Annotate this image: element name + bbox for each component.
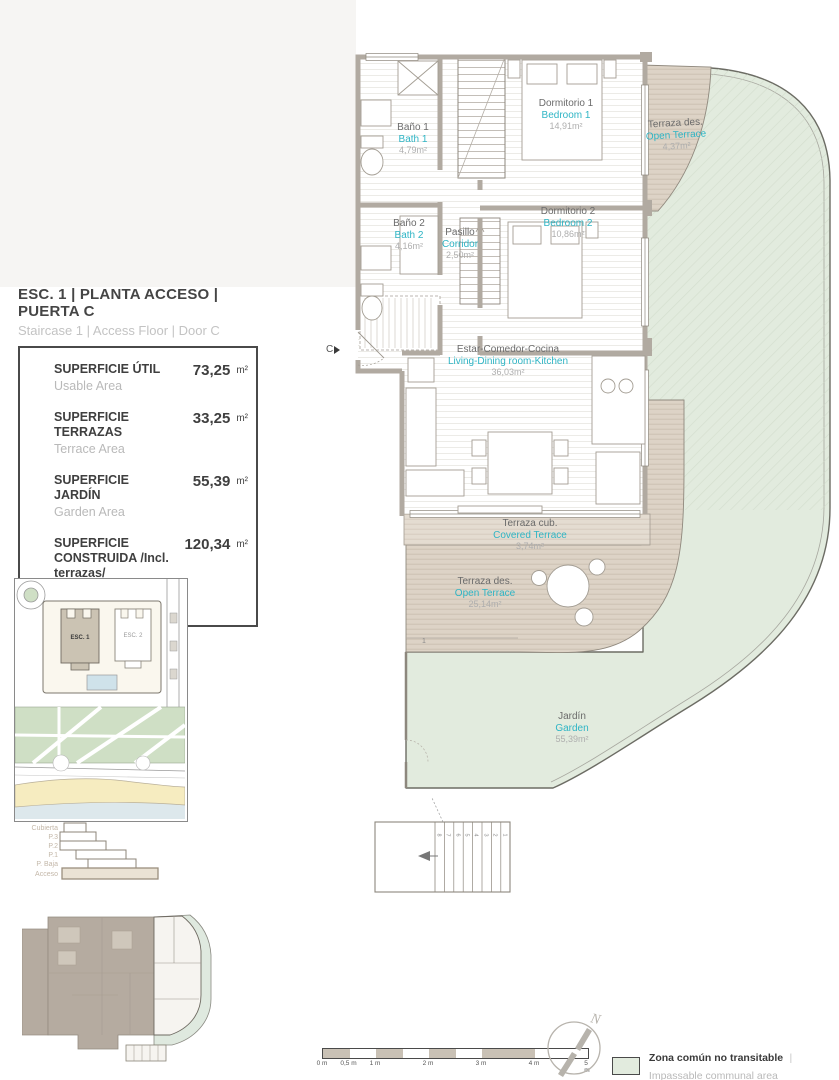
- stair-step-number: 3: [483, 833, 489, 836]
- room-area: 10,86m²: [541, 229, 595, 241]
- section-graphic: Cubierta P.3 P.2 P.1 P. Baja Acceso: [16, 820, 186, 884]
- section-level-label: P.1: [48, 852, 58, 859]
- area-value: 120,34 m²: [174, 536, 248, 553]
- entrance-arrow-icon: [334, 346, 340, 354]
- esc1-label: ESC. 1: [70, 635, 90, 641]
- room-label-bedroom2: Dormitorio 2 Bedroom 2 10,86m²: [541, 206, 595, 241]
- room-name-en: Open Terrace: [455, 588, 515, 600]
- room-name-es: Estar-Comedor-Cocina: [448, 344, 568, 356]
- room-name-es: Terraza des.: [455, 576, 515, 588]
- esc2-label: ESC. 2: [123, 633, 143, 639]
- scale-label: 1 m: [370, 1060, 381, 1067]
- section-level-label: Cubierta: [32, 825, 59, 832]
- beach: [15, 779, 185, 807]
- compass-needle-upper: [575, 1028, 592, 1051]
- room-name-en: Bedroom 2: [541, 218, 595, 230]
- room-name-es: Baño 1: [397, 122, 429, 134]
- info-panel: ESC. 1 | PLANTA ACCESO | PUERTA C Stairc…: [18, 286, 262, 627]
- scale-label: 0,5 m: [340, 1060, 356, 1067]
- compass-graphic: N: [532, 1002, 624, 1078]
- area-number: 73,25: [193, 362, 231, 379]
- sea: [15, 803, 185, 819]
- room-name-en: Bath 1: [397, 134, 429, 146]
- legend-swatch: [612, 1057, 640, 1075]
- area-label-es: SUPERFICIE JARDÍN: [54, 473, 174, 503]
- stair-step-number: 5: [464, 833, 470, 836]
- room-area: 36,03m²: [448, 367, 568, 379]
- key-plan-current-unit: [154, 916, 201, 1035]
- scale-segment: [323, 1049, 350, 1058]
- room-label-open-terrace-small: Terraza des. Open Terrace 4,37m²: [645, 116, 707, 154]
- room-name-es: Pasillo: [442, 227, 478, 239]
- room-name-en: Bath 2: [393, 230, 425, 242]
- scale-segment: [429, 1049, 456, 1058]
- area-labels: SUPERFICIE TERRAZAS Terrace Area: [54, 410, 174, 456]
- legend: Zona común no transitable | Impassable c…: [612, 1048, 839, 1080]
- area-number: 120,34: [184, 536, 230, 553]
- key-plan-graphic: [22, 903, 222, 1063]
- room-label-bedroom1: Dormitorio 1 Bedroom 1 14,91m²: [539, 98, 593, 133]
- area-value: 55,39 m²: [174, 473, 248, 490]
- tv-unit: [458, 506, 542, 513]
- room-name-es: Dormitorio 2: [541, 206, 595, 218]
- stair-step-number: 4: [473, 833, 479, 836]
- stair-step-number: 7: [445, 833, 451, 836]
- page-subtitle: Staircase 1 | Access Floor | Door C: [18, 323, 262, 338]
- entrance-letter: C: [326, 344, 333, 355]
- right-road: [167, 579, 179, 707]
- room-label-corridor: Pasillo Corridor 2,50m²: [442, 227, 478, 262]
- scale-segment: [482, 1049, 535, 1058]
- room-label-bath2: Baño 2 Bath 2 4,16m²: [393, 218, 425, 253]
- area-row-garden: SUPERFICIE JARDÍN Garden Area 55,39 m²: [20, 473, 248, 519]
- section-level-p3: [60, 832, 96, 841]
- room-name-en: Living-Dining room-Kitchen: [448, 356, 568, 368]
- top-left-backdrop: [0, 0, 356, 287]
- area-unit: m²: [236, 362, 248, 376]
- entrance-marker: C: [326, 344, 340, 355]
- building-section-diagram: Cubierta P.3 P.2 P.1 P. Baja Acceso: [16, 820, 186, 884]
- section-level-cubierta: [64, 823, 86, 832]
- area-number: 33,25: [193, 410, 231, 427]
- section-level-p1: [76, 850, 126, 859]
- section-level-label: P.3: [48, 834, 58, 841]
- compass-north-arrow: N: [532, 1002, 624, 1078]
- floorplan-graphic: [340, 40, 839, 900]
- page-title: ESC. 1 | PLANTA ACCESO | PUERTA C: [18, 286, 262, 320]
- area-label-en: Garden Area: [54, 505, 174, 519]
- room-name-es: Terraza cub.: [493, 518, 567, 530]
- park: [15, 707, 185, 771]
- room-name-en: Covered Terrace: [493, 530, 567, 542]
- floorplan-sheet: ESC. 1 | PLANTA ACCESO | PUERTA C Stairc…: [0, 0, 839, 1080]
- room-label-covered-terrace: Terraza cub. Covered Terrace 3,74m²: [493, 518, 567, 553]
- building-esc2: ESC. 2: [115, 609, 151, 668]
- stair-step-number: 1: [502, 833, 508, 836]
- room-name-es: Jardín: [555, 711, 588, 723]
- section-level-acceso-highlight: [62, 868, 158, 879]
- room-name-en: Corridor: [442, 239, 478, 251]
- key-plan-thumbnail: [22, 903, 222, 1063]
- room-area: 2,50m²: [442, 250, 478, 262]
- area-row-usable: SUPERFICIE ÚTIL Usable Area 73,25 m²: [20, 362, 248, 393]
- area-value: 73,25 m²: [174, 362, 248, 379]
- room-label-living: Estar-Comedor-Cocina Living-Dining room-…: [448, 344, 568, 379]
- roundabout: [17, 581, 45, 609]
- area-label-es: SUPERFICIE ÚTIL: [54, 362, 174, 377]
- room-area: 55,39m²: [555, 734, 588, 746]
- area-unit: m²: [236, 410, 248, 424]
- area-value: 33,25 m²: [174, 410, 248, 427]
- legend-text: Zona común no transitable | Impassable c…: [649, 1048, 839, 1080]
- stair-step-number: 2: [492, 833, 498, 836]
- area-label-en: Usable Area: [54, 379, 174, 393]
- scale-segment: [456, 1049, 483, 1058]
- scale-segment: [350, 1049, 377, 1058]
- scale-segment: [376, 1049, 403, 1058]
- site-location-map: ESC. 1 ESC. 2: [14, 578, 188, 822]
- room-name-en: Bedroom 1: [539, 110, 593, 122]
- section-level-label: P. Baja: [36, 861, 58, 868]
- scale-label: 0 m: [317, 1060, 328, 1067]
- section-level-label: P.2: [48, 843, 58, 850]
- building-esc1: ESC. 1: [61, 609, 99, 670]
- room-area: 4,79m²: [397, 145, 429, 157]
- room-area: 25,14m²: [455, 599, 515, 611]
- external-staircase: [375, 798, 510, 892]
- site-map-graphic: ESC. 1 ESC. 2: [15, 579, 185, 819]
- internal-stair-upper: [458, 57, 505, 178]
- section-level-pbaja: [88, 859, 136, 868]
- section-level-label: Acceso: [35, 871, 58, 878]
- area-unit: m²: [236, 536, 248, 550]
- room-label-bath1: Baño 1 Bath 1 4,79m²: [397, 122, 429, 157]
- main-floorplan: C Baño 1 Bath 1 4,79m² Dormitorio 1 Bedr…: [340, 40, 839, 900]
- area-unit: m²: [236, 473, 248, 487]
- pool: [87, 675, 117, 690]
- area-row-terrace: SUPERFICIE TERRAZAS Terrace Area 33,25 m…: [20, 410, 248, 456]
- kitchen: [592, 356, 645, 504]
- scale-label: 2 m: [423, 1060, 434, 1067]
- compass-north-label: N: [588, 1011, 602, 1028]
- room-name-en: Garden: [555, 723, 588, 735]
- scale-segment: [403, 1049, 430, 1058]
- room-area: 4,16m²: [393, 241, 425, 253]
- scale-label: 3 m: [476, 1060, 487, 1067]
- area-label-en: Terrace Area: [54, 442, 174, 456]
- legend-separator: |: [790, 1052, 793, 1064]
- area-label-es: SUPERFICIE TERRAZAS: [54, 410, 174, 440]
- area-label-es: SUPERFICIE CONSTRUIDA /Incl. terrazas/: [54, 536, 174, 581]
- legend-label-en: Impassable communal area: [649, 1070, 778, 1080]
- area-labels: SUPERFICIE ÚTIL Usable Area: [54, 362, 174, 393]
- room-area: 3,74m²: [493, 541, 567, 553]
- key-plan-stair: [126, 1045, 166, 1061]
- area-number: 55,39: [193, 473, 231, 490]
- room-label-open-terrace-large: Terraza des. Open Terrace 25,14m²: [455, 576, 515, 611]
- key-plan-other-units: [22, 929, 48, 1035]
- room-name-es: Dormitorio 1: [539, 98, 593, 110]
- section-level-p2: [60, 841, 106, 850]
- room-label-garden: Jardín Garden 55,39m²: [555, 711, 588, 746]
- stair-step-number: 8: [436, 833, 442, 836]
- terrace-step-number: 1: [422, 638, 426, 645]
- room-area: 14,91m²: [539, 121, 593, 133]
- area-labels: SUPERFICIE JARDÍN Garden Area: [54, 473, 174, 519]
- legend-label-es: Zona común no transitable: [649, 1052, 783, 1064]
- building-plot: ESC. 1 ESC. 2: [43, 601, 161, 693]
- room-name-es: Baño 2: [393, 218, 425, 230]
- stair-step-number: 6: [455, 833, 461, 836]
